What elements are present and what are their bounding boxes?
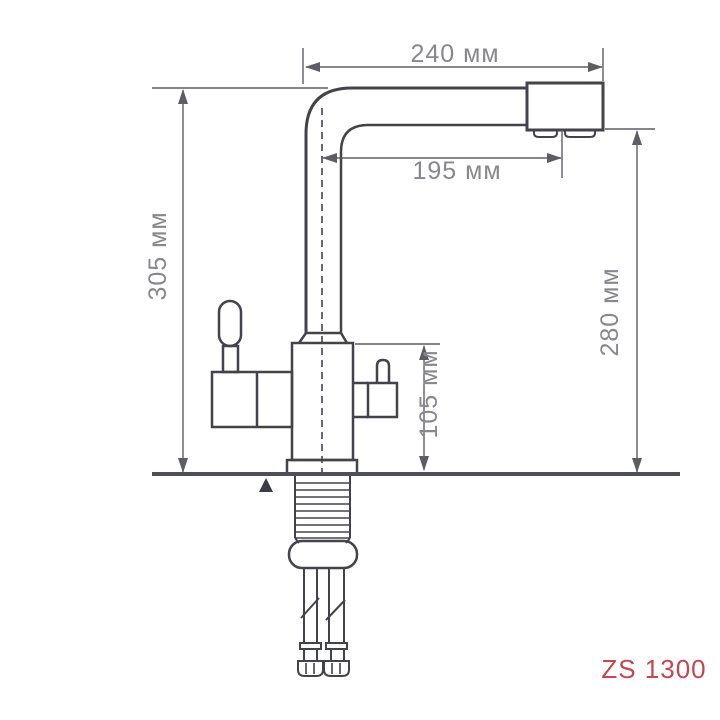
- faucet-outline: [212, 83, 603, 676]
- dimension-total-height: [152, 88, 328, 472]
- mounting-arrow-marker: [259, 478, 273, 492]
- hose-right-nut-facets: [332, 663, 340, 674]
- hose-right-neck: [331, 649, 344, 661]
- hose-right: [329, 568, 344, 643]
- shank-sides: [295, 476, 350, 543]
- threaded-shank: [295, 476, 350, 543]
- hose-left: [304, 568, 317, 643]
- shank-threads: [295, 483, 350, 538]
- dimension-label-top-width: 240 мм: [410, 40, 499, 68]
- technical-drawing-canvas: 240 мм 195 мм 305 мм 280 мм 105 мм ZS 13…: [0, 0, 720, 720]
- dimension-label-spout-reach: 195 мм: [412, 157, 501, 185]
- riser-flare: [299, 333, 347, 343]
- hose-left-nut-facets: [306, 663, 314, 674]
- dimension-label-body-height: 105 мм: [415, 349, 443, 438]
- dimension-label-spout-height: 280 мм: [596, 267, 624, 356]
- supply-hoses: [298, 568, 349, 676]
- handle-stem: [223, 346, 238, 372]
- faucet-dimension-drawing: 240 мм 195 мм 305 мм 280 мм 105 мм ZS 13…: [0, 0, 720, 720]
- hose-left-neck: [304, 649, 317, 661]
- filter-lever-stem: [377, 360, 389, 383]
- hose-right-nut: [324, 661, 349, 676]
- model-label: ZS 1300: [601, 654, 706, 684]
- filter-lever-step: [353, 383, 368, 417]
- spout-head: [527, 83, 603, 130]
- handle-arm: [212, 372, 292, 427]
- handle-knob: [219, 301, 241, 346]
- mounting-nut: [289, 541, 357, 568]
- dimension-label-total-height: 305 мм: [144, 211, 172, 300]
- hose-left-nut: [298, 661, 323, 676]
- filter-lever-box: [368, 383, 397, 417]
